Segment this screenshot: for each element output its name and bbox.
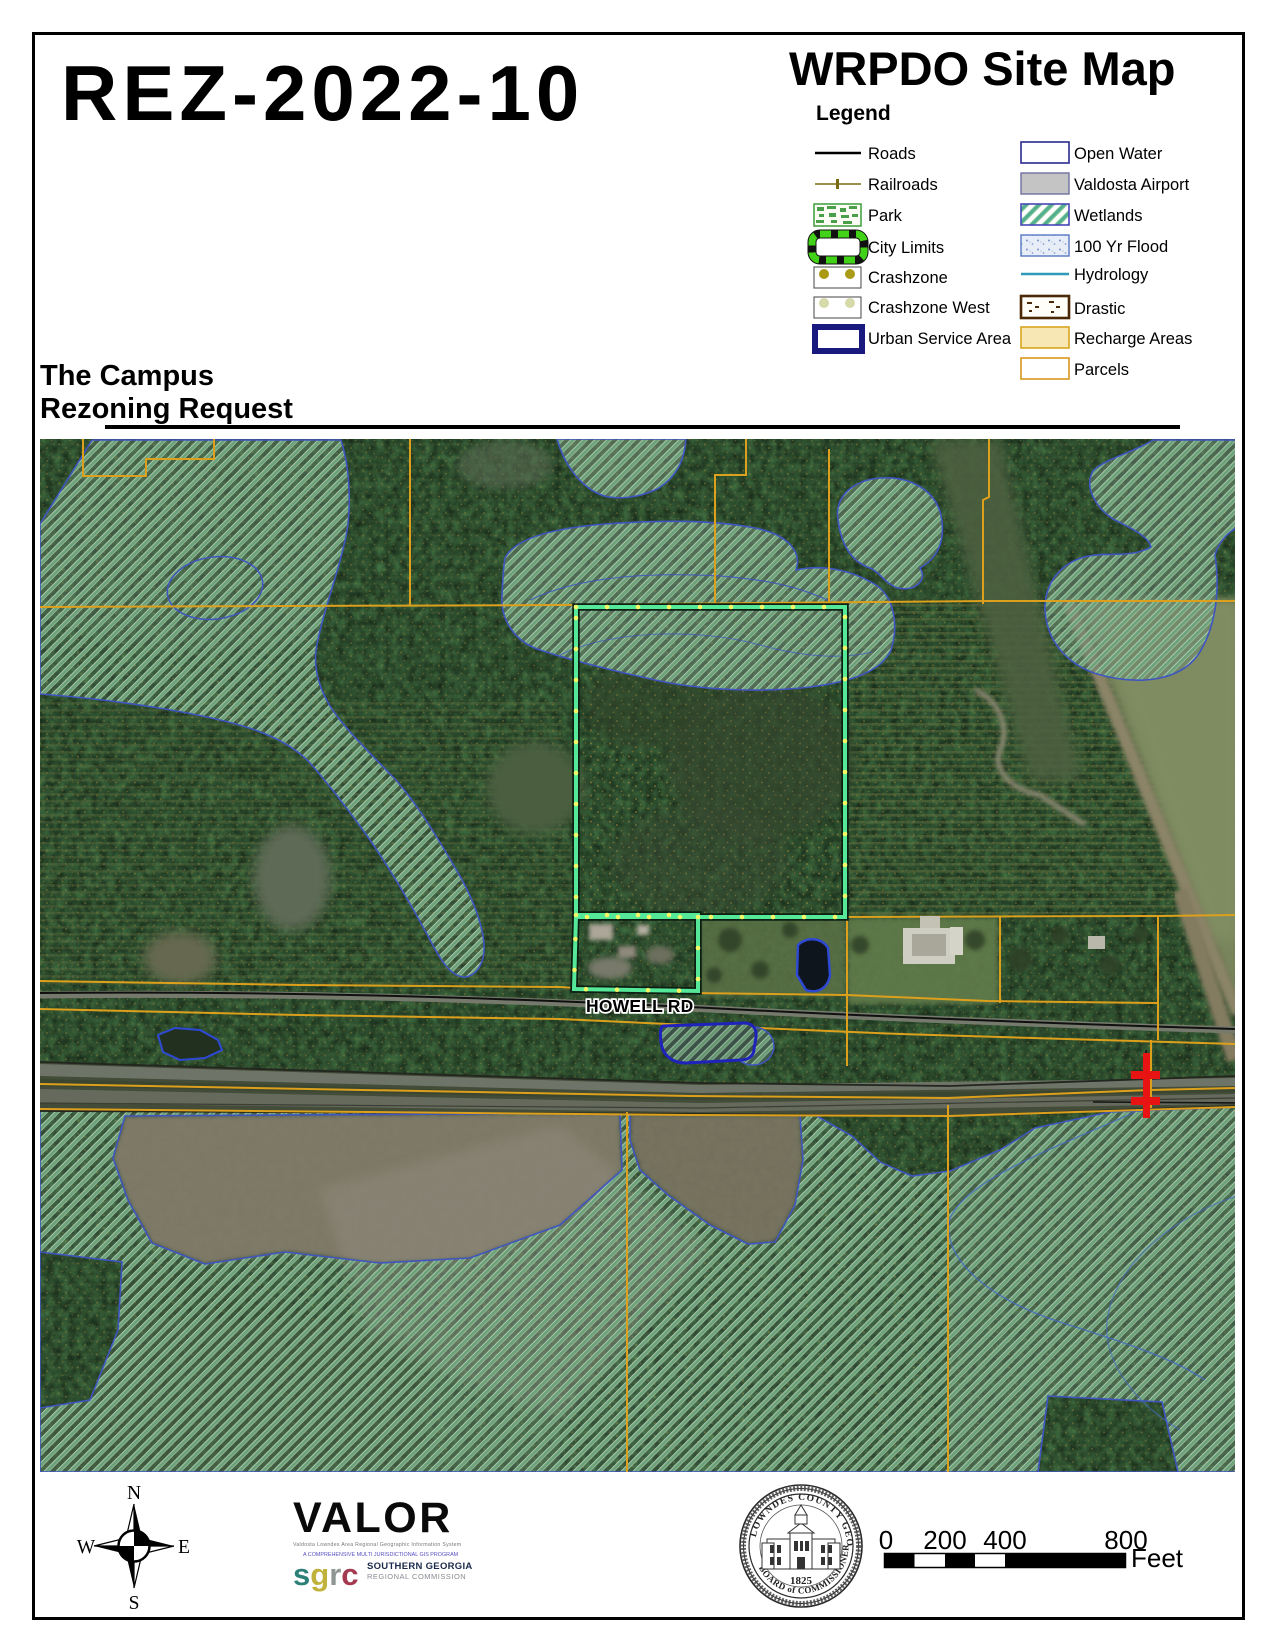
svg-text:Crashzone: Crashzone <box>868 269 948 287</box>
svg-text:Valdosta Airport: Valdosta Airport <box>1074 176 1190 194</box>
svg-text:Open Water: Open Water <box>1074 145 1163 163</box>
svg-text:0: 0 <box>879 1525 893 1555</box>
svg-text:Railroads: Railroads <box>868 176 938 194</box>
svg-text:Recharge Areas: Recharge Areas <box>1074 330 1192 348</box>
svg-text:Park: Park <box>868 207 903 225</box>
svg-text:Roads: Roads <box>868 145 916 163</box>
svg-text:Crashzone West: Crashzone West <box>868 299 990 317</box>
svg-text:S: S <box>129 1593 140 1614</box>
svg-text:Feet: Feet <box>1131 1543 1184 1573</box>
svg-text:City Limits: City Limits <box>868 239 944 257</box>
svg-text:400: 400 <box>983 1525 1026 1555</box>
svg-text:HOWELL RD: HOWELL RD <box>586 996 693 1016</box>
svg-text:Drastic: Drastic <box>1074 300 1125 318</box>
svg-text:Parcels: Parcels <box>1074 361 1129 379</box>
svg-text:100 Yr Flood: 100 Yr Flood <box>1074 238 1168 256</box>
svg-text:1825: 1825 <box>790 1575 813 1587</box>
svg-text:Urban Service Area: Urban Service Area <box>868 330 1012 348</box>
svg-text:W: W <box>77 1537 96 1558</box>
svg-text:200: 200 <box>923 1525 966 1555</box>
svg-text:E: E <box>178 1537 190 1558</box>
svg-text:Hydrology: Hydrology <box>1074 266 1149 284</box>
svg-text:Wetlands: Wetlands <box>1074 207 1142 225</box>
svg-text:N: N <box>127 1483 141 1504</box>
